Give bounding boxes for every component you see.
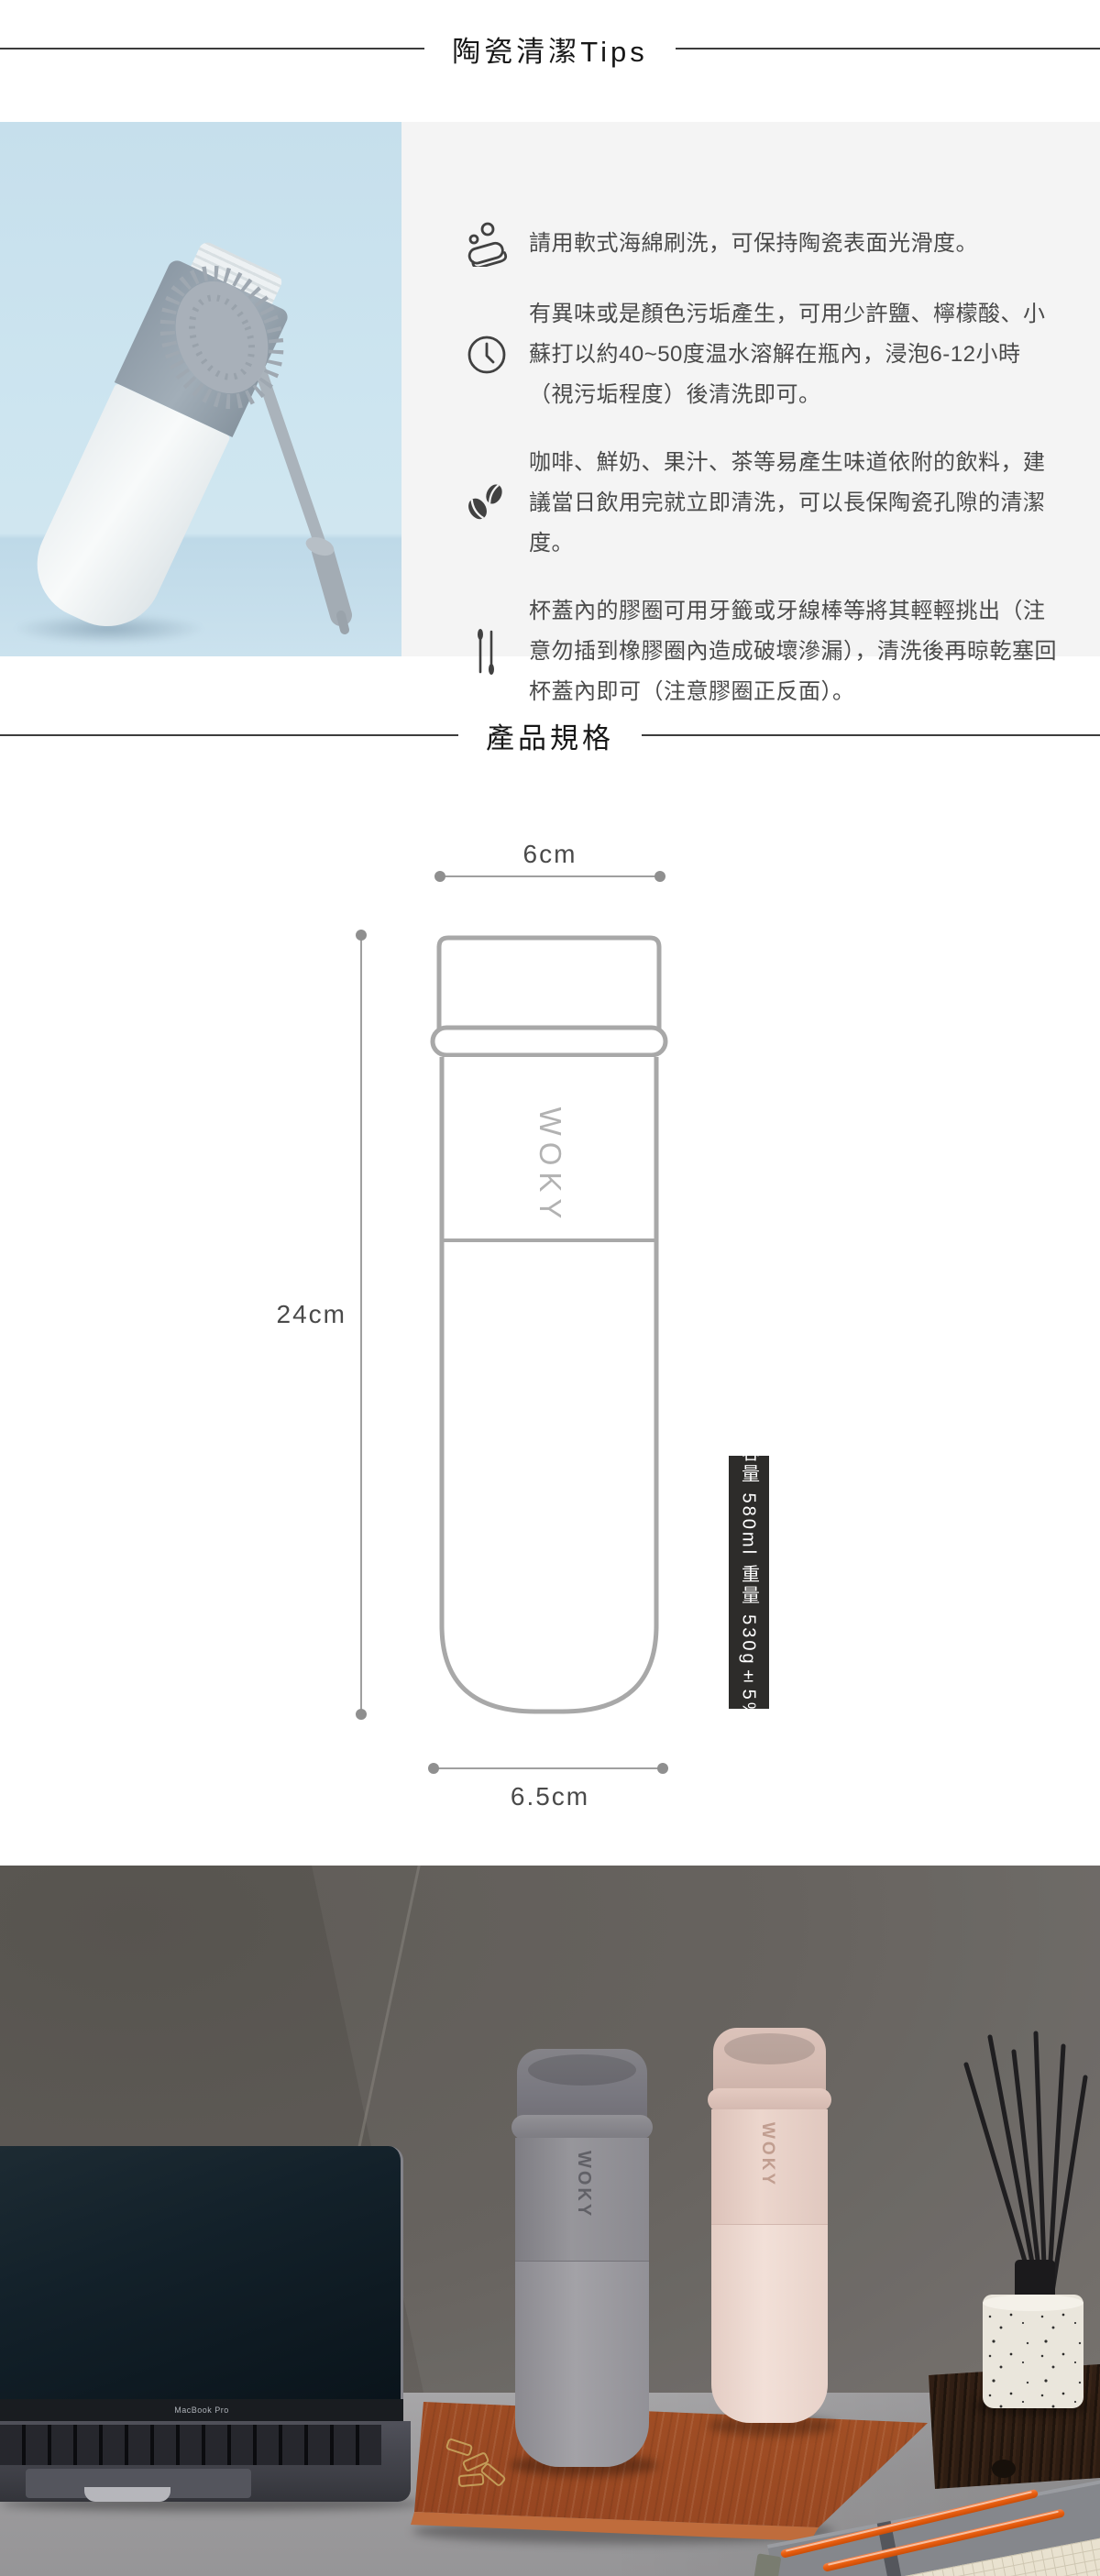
header-rule-right xyxy=(676,48,1100,50)
cleaning-tips-header: 陶瓷清潔Tips xyxy=(0,28,1100,70)
tip-text: 有異味或是顏色污垢產生，可用少許鹽、檸檬酸、小蘇打以約40~50度温水溶解在瓶內… xyxy=(529,294,1065,415)
sponge-icon xyxy=(463,221,511,267)
spec-header: 產品規格 xyxy=(0,714,1100,756)
pink-bottle-ring xyxy=(708,2088,831,2111)
cleaning-tips-panel: 請用軟式海綿刷洗，可保持陶瓷表面光滑度。 有異味或是顏色污垢產生，可用少許鹽、檸… xyxy=(401,122,1100,656)
tip-row: 咖啡、鮮奶、果汁、茶等易產生味道依附的飲料，建議當日飲用完就立即清洗，可以長保陶… xyxy=(463,443,1065,564)
gray-bottle-brand: WOKY xyxy=(570,2151,594,2218)
cleaning-tips-section: WOKY xyxy=(0,122,1100,656)
cleaning-photo: WOKY xyxy=(0,122,401,656)
header-rule-left xyxy=(0,48,424,50)
top-diameter-label: 6cm xyxy=(0,840,1100,869)
height-label: 24cm xyxy=(229,1300,346,1329)
tip-row: 請用軟式海綿刷洗，可保持陶瓷表面光滑度。 xyxy=(463,221,1065,267)
pink-bottle-body xyxy=(711,2224,828,2423)
bottom-dimension-line xyxy=(432,1767,665,1769)
bottle-outline-drawing xyxy=(430,932,668,1721)
clock-icon xyxy=(463,332,511,378)
gray-bottle-ring xyxy=(511,2115,653,2140)
pink-bottle-brand: WOKY xyxy=(755,2122,777,2185)
tip-row: 有異味或是顏色污垢產生，可用少許鹽、檸檬酸、小蘇打以約40~50度温水溶解在瓶內… xyxy=(463,294,1065,415)
laptop-lid-notch xyxy=(84,2487,170,2502)
cleaning-brush xyxy=(0,122,401,656)
product-detail-page: 陶瓷清潔Tips WOKY xyxy=(0,0,1100,2576)
capacity-weight-tag: 容量 580ml 重量 530g±5% xyxy=(729,1456,769,1709)
laptop-keyboard xyxy=(0,2425,381,2465)
top-dimension-line xyxy=(438,875,662,877)
tip-row: 杯蓋內的膠圈可用牙籤或牙線棒等將其輕輕挑出（注意勿插到橡膠圈內造成破壞滲漏），清… xyxy=(463,591,1065,712)
pink-bottle-lid xyxy=(713,2028,826,2095)
cleaning-tips-title: 陶瓷清潔Tips xyxy=(452,28,647,70)
header-rule-left xyxy=(0,734,458,736)
header-rule-right xyxy=(642,734,1100,736)
spec-diagram: 6cm 24cm WOKY 容量 580ml 重量 530g±5% 6.5cm xyxy=(0,825,1100,1843)
laptop-bezel: MacBook Pro xyxy=(0,2399,403,2421)
tip-text: 杯蓋內的膠圈可用牙籤或牙線棒等將其輕輕挑出（注意勿插到橡膠圈內造成破壞滲漏），清… xyxy=(529,591,1065,712)
laptop-base xyxy=(0,2421,411,2502)
bottom-diameter-label: 6.5cm xyxy=(0,1782,1100,1811)
pink-bottle: WOKY xyxy=(708,2028,831,2425)
capacity-weight-text: 容量 580ml 重量 530g±5% xyxy=(736,1443,763,1722)
paperclip xyxy=(457,2473,484,2487)
diffuser-vase xyxy=(983,2295,1083,2408)
gray-bottle-body xyxy=(515,2261,649,2467)
coffee-beans-icon xyxy=(463,480,511,526)
laptop-screen xyxy=(0,2146,403,2399)
cotton-swab-icon xyxy=(463,626,511,677)
lifestyle-photo: MacBook Pro WOKY xyxy=(0,1866,1100,2576)
wood-knot xyxy=(992,2460,1016,2478)
tip-text: 咖啡、鮮奶、果汁、茶等易產生味道依附的飲料，建議當日飲用完就立即清洗，可以長保陶… xyxy=(529,443,1065,564)
spec-title: 產品規格 xyxy=(486,715,614,756)
height-dimension-line xyxy=(360,934,362,1715)
gray-bottle: WOKY xyxy=(511,2049,653,2466)
laptop-brand-label: MacBook Pro xyxy=(174,2405,229,2415)
tip-text: 請用軟式海綿刷洗，可保持陶瓷表面光滑度。 xyxy=(529,224,1065,264)
brand-logo-diagram: WOKY xyxy=(531,1102,567,1230)
gray-bottle-lid xyxy=(517,2049,647,2122)
